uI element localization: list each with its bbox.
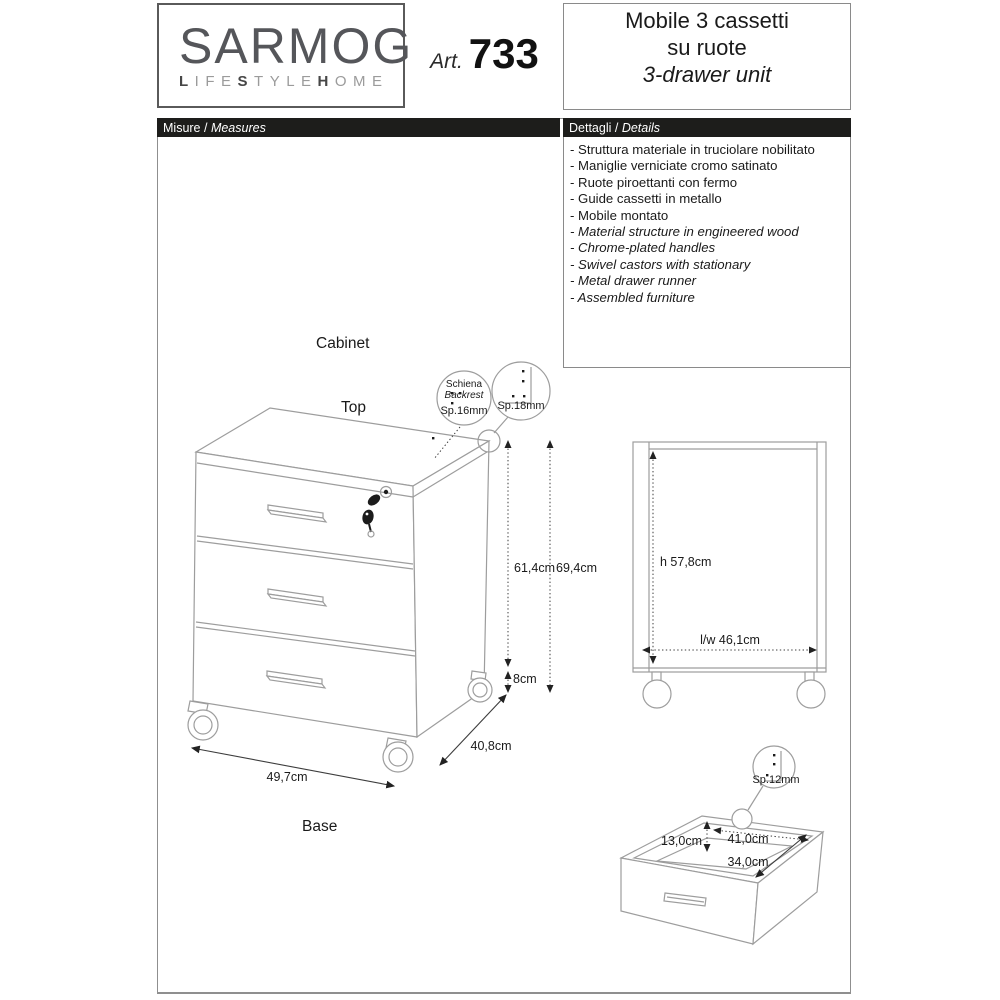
detail-item: - Chrome-plated handles bbox=[570, 240, 850, 256]
tagline-part: OME bbox=[335, 73, 389, 90]
measures-bar-label-en: Measures bbox=[211, 121, 266, 135]
spec-sheet-page: SARMOG LIFESTYLEHOME Art. 733 Mobile 3 c… bbox=[0, 0, 1000, 1000]
detail-item: - Assembled furniture bbox=[570, 290, 850, 306]
detail-item: - Swivel castors with stationary bbox=[570, 257, 850, 273]
brand-tagline: LIFESTYLEHOME bbox=[179, 73, 403, 90]
tagline-part: TYLE bbox=[254, 73, 318, 90]
article-number-block: Art. 733 bbox=[412, 30, 557, 80]
detail-item: - Metal drawer runner bbox=[570, 273, 850, 289]
details-bar-label-it: Dettagli bbox=[569, 121, 611, 135]
details-list-panel: - Struttura materiale in truciolare nobi… bbox=[563, 137, 851, 368]
tagline-part: S bbox=[238, 73, 255, 90]
article-number: 733 bbox=[469, 30, 539, 78]
product-title-box: Mobile 3 cassetti su ruote 3-drawer unit bbox=[563, 3, 851, 110]
tagline-part: H bbox=[318, 73, 335, 90]
measures-bar-separator: / bbox=[201, 121, 211, 135]
measures-section-bar: Misure / Measures bbox=[157, 118, 560, 137]
brand-logo-box: SARMOG LIFESTYLEHOME bbox=[157, 3, 405, 108]
tagline-part: L bbox=[179, 73, 195, 90]
detail-item: - Struttura materiale in truciolare nobi… bbox=[570, 142, 850, 158]
detail-item: - Material structure in engineered wood bbox=[570, 224, 850, 240]
article-label: Art. bbox=[430, 50, 463, 74]
product-title-it-line1: Mobile 3 cassetti bbox=[625, 7, 789, 34]
measures-bar-label-it: Misure bbox=[163, 121, 201, 135]
details-section-bar: Dettagli / Details bbox=[563, 118, 851, 137]
details-bar-label-en: Details bbox=[622, 121, 660, 135]
brand-name: SARMOG bbox=[179, 21, 403, 71]
detail-item: - Guide cassetti in metallo bbox=[570, 191, 850, 207]
detail-item: - Mobile montato bbox=[570, 208, 850, 224]
details-bar-separator: / bbox=[611, 121, 621, 135]
product-title-en: 3-drawer unit bbox=[643, 61, 771, 88]
detail-item: - Maniglie verniciate cromo satinato bbox=[570, 158, 850, 174]
tagline-part: IFE bbox=[195, 73, 238, 90]
detail-item: - Ruote piroettanti con fermo bbox=[570, 175, 850, 191]
product-title-it-line2: su ruote bbox=[667, 34, 747, 61]
